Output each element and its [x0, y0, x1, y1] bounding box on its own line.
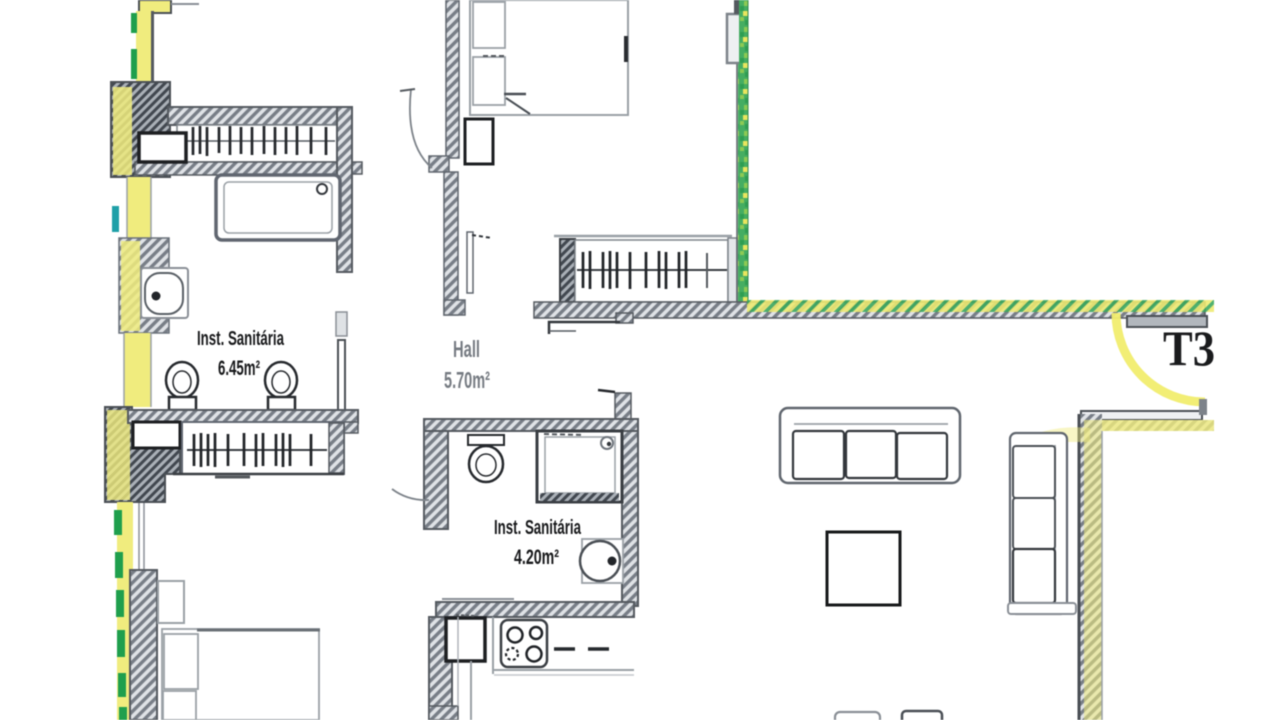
svg-text:Inst. Sanitária: Inst. Sanitária — [494, 517, 582, 539]
svg-text:Hall: Hall — [453, 336, 480, 362]
svg-text:6.45m²: 6.45m² — [218, 357, 260, 380]
svg-text:T3: T3 — [1163, 320, 1215, 376]
svg-text:5.70m²: 5.70m² — [444, 367, 490, 393]
svg-text:4.20m²: 4.20m² — [514, 546, 559, 569]
svg-text:Inst. Sanitária: Inst. Sanitária — [197, 328, 285, 350]
